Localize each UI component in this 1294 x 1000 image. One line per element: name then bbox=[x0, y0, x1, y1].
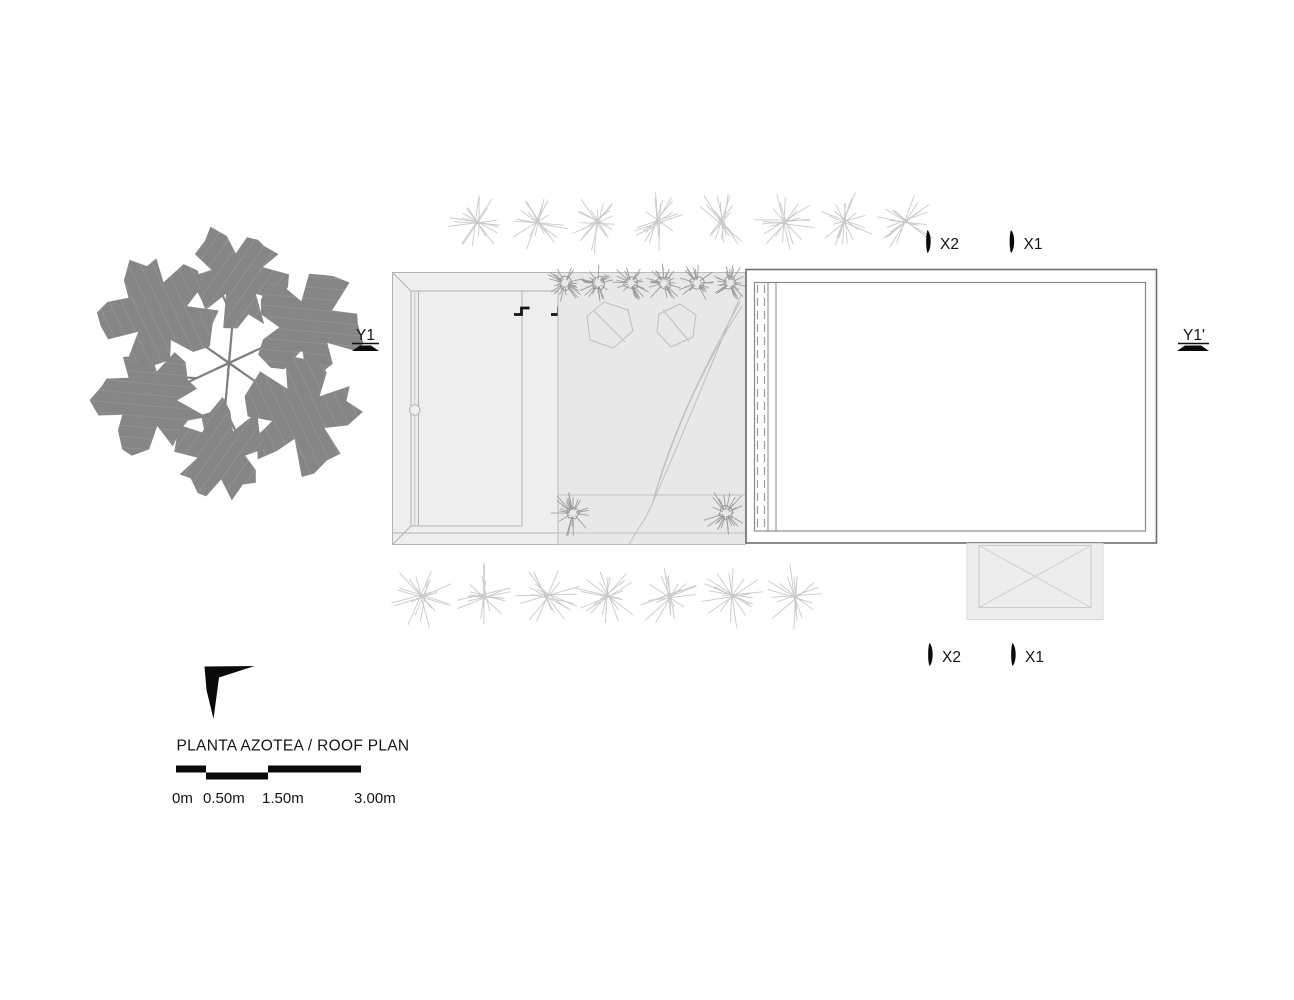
scale-bar bbox=[176, 766, 361, 780]
drain-circle bbox=[410, 405, 420, 415]
y1-label: Y1 bbox=[356, 327, 375, 344]
grass-row-top bbox=[449, 192, 933, 253]
section-markers-x-bottom: X2 X1 bbox=[928, 643, 1044, 666]
scale-label-300m: 3.00m bbox=[354, 790, 396, 807]
y1-prime-label: Y1' bbox=[1183, 327, 1205, 344]
grass-row-bottom bbox=[391, 563, 822, 630]
section-markers-x-top: X2 X1 bbox=[926, 230, 1042, 253]
x1-bottom-label: X1 bbox=[1025, 649, 1044, 666]
y1-prime-cut-bar-icon bbox=[1177, 346, 1209, 352]
roof-plan-sheet: Y1 Y1' X2 X1 X2 X1 PLANTA AZOTEA / ROOF … bbox=[0, 0, 1294, 1000]
x1-top-label: X1 bbox=[1024, 236, 1043, 253]
scale-label-050m: 0.50m bbox=[203, 790, 245, 807]
section-marker-y1-prime: Y1' bbox=[1177, 327, 1209, 351]
scale-label-150m: 1.50m bbox=[262, 790, 304, 807]
x1-bottom-cut-icon bbox=[1011, 643, 1016, 666]
roof-outline bbox=[746, 270, 1157, 544]
annex-outline bbox=[967, 544, 1103, 620]
scale-segment-3 bbox=[268, 766, 361, 773]
roof-deck-left bbox=[393, 273, 567, 545]
scale-label-0m: 0m bbox=[172, 790, 193, 807]
plan-title: PLANTA AZOTEA / ROOF PLAN bbox=[177, 738, 410, 755]
x2-bottom-label: X2 bbox=[942, 649, 961, 666]
x2-bottom-cut-icon bbox=[928, 643, 933, 666]
x2-top-cut-icon bbox=[926, 230, 931, 253]
tree-canopy-plan bbox=[79, 224, 379, 508]
scale-segment-2 bbox=[206, 773, 268, 780]
courtyard-roof bbox=[558, 273, 746, 545]
x1-top-cut-icon bbox=[1010, 230, 1015, 253]
main-roof bbox=[746, 270, 1157, 544]
scale-segment-1 bbox=[176, 766, 206, 773]
plan-drawing: Y1 Y1' X2 X1 X2 X1 PLANTA AZOTEA / ROOF … bbox=[0, 0, 1294, 1000]
annex-skylight bbox=[967, 544, 1103, 620]
title-block: PLANTA AZOTEA / ROOF PLAN 0m 0.50m 1.50m… bbox=[172, 666, 409, 807]
north-arrow-icon bbox=[205, 666, 255, 719]
x2-top-label: X2 bbox=[940, 236, 959, 253]
